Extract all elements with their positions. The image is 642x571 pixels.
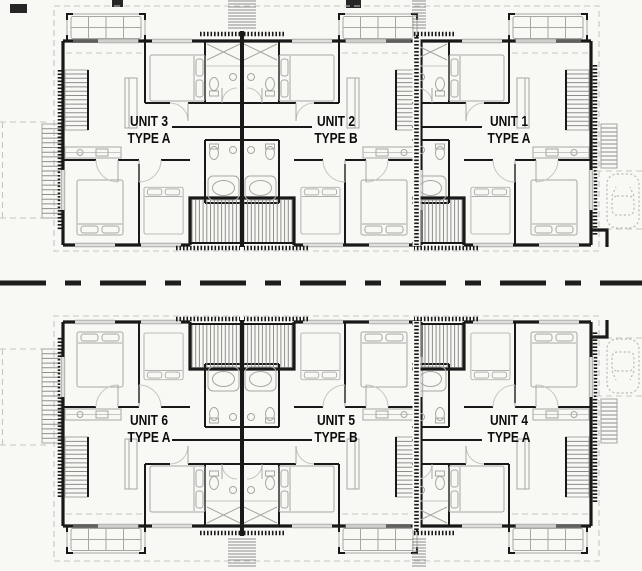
unit-type: TYPE B — [313, 131, 359, 148]
unit-number: UNIT 5 — [313, 413, 359, 430]
unit-type: TYPE A — [486, 131, 532, 148]
unit-6-label: UNIT 6 TYPE A — [126, 413, 172, 446]
unit-3-label: UNIT 3 TYPE A — [126, 114, 172, 147]
unit-5-label: UNIT 5 TYPE B — [313, 413, 359, 446]
unit-4-label: UNIT 4 TYPE A — [486, 413, 532, 446]
unit-number: UNIT 3 — [126, 114, 172, 131]
unit-2-label: UNIT 2 TYPE B — [313, 114, 359, 147]
unit-type: TYPE A — [126, 131, 172, 148]
unit-number: UNIT 4 — [486, 413, 532, 430]
unit-type: TYPE B — [313, 430, 359, 447]
unit-type: TYPE A — [126, 430, 172, 447]
floor-plan-sheet: UNIT 3 TYPE A UNIT 2 TYPE B UNIT 1 TYPE … — [0, 0, 642, 571]
floor-plan-drawing — [0, 0, 642, 571]
unit-1-label: UNIT 1 TYPE A — [486, 114, 532, 147]
unit-number: UNIT 2 — [313, 114, 359, 131]
unit-number: UNIT 1 — [486, 114, 532, 131]
unit-type: TYPE A — [486, 430, 532, 447]
unit-number: UNIT 6 — [126, 413, 172, 430]
